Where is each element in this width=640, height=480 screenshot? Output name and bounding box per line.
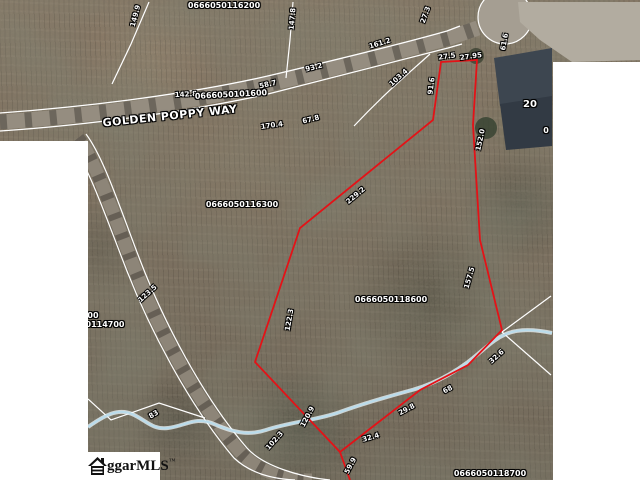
map-linework	[0, 0, 640, 480]
parcel-line	[86, 134, 330, 480]
highlighted-parcel-outline	[340, 452, 350, 480]
highlighted-parcel-outline	[255, 60, 502, 452]
aerial-photo-region: 0666050116200149.9147.827.3161.261.693.2…	[0, 0, 640, 480]
tree	[475, 117, 497, 139]
trademark-symbol: ™	[169, 457, 176, 465]
house-icon	[88, 455, 107, 477]
parcel-line	[112, 2, 149, 84]
stream	[88, 330, 552, 433]
house-roof	[494, 48, 552, 106]
mls-watermark: ggarMLS™	[86, 452, 160, 480]
house-roof-lower	[500, 96, 552, 150]
watermark-text: ggarMLS	[107, 458, 169, 475]
parcel-line	[286, 2, 293, 78]
parcel-map: 0666050116200149.9147.827.3161.261.693.2…	[0, 0, 640, 480]
parcel-line	[502, 332, 551, 375]
parcel-line	[502, 296, 551, 332]
